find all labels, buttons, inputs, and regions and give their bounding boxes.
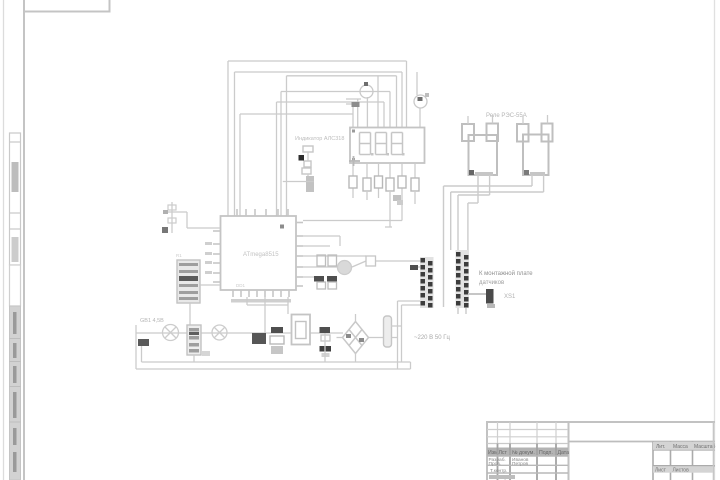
svg-text:Пров.: Пров. bbox=[489, 461, 502, 467]
svg-text:R1: R1 bbox=[176, 253, 182, 258]
svg-text:DD1: DD1 bbox=[236, 283, 245, 288]
svg-text:Листов: Листов bbox=[673, 468, 690, 474]
svg-text:Подп.: Подп. bbox=[539, 450, 553, 456]
svg-text:Индикатор АЛС318: Индикатор АЛС318 bbox=[295, 136, 344, 142]
svg-text:Изм: Изм bbox=[488, 450, 498, 456]
svg-text:Т.контр.: Т.контр. bbox=[490, 468, 507, 474]
svg-text:~220 В 50 Гц: ~220 В 50 Гц bbox=[414, 335, 450, 341]
svg-text:№ докум.: № докум. bbox=[512, 450, 535, 456]
svg-text:датчиков: датчиков bbox=[479, 280, 504, 286]
svg-text:GB1 4,5B: GB1 4,5B bbox=[140, 318, 164, 324]
svg-text:К монтажной плате: К монтажной плате bbox=[479, 270, 533, 277]
svg-text:ATmega8515: ATmega8515 bbox=[243, 252, 279, 258]
svg-text:Лист: Лист bbox=[655, 468, 667, 474]
svg-text:Дата: Дата bbox=[558, 450, 570, 456]
svg-text:Масштаб: Масштаб bbox=[694, 444, 716, 450]
svg-text:Масса: Масса bbox=[673, 444, 688, 450]
svg-text:Лст: Лст bbox=[499, 450, 508, 456]
svg-text:XS1: XS1 bbox=[504, 294, 516, 300]
svg-text:Лит.: Лит. bbox=[656, 444, 665, 450]
svg-text:Петров: Петров bbox=[512, 461, 528, 467]
